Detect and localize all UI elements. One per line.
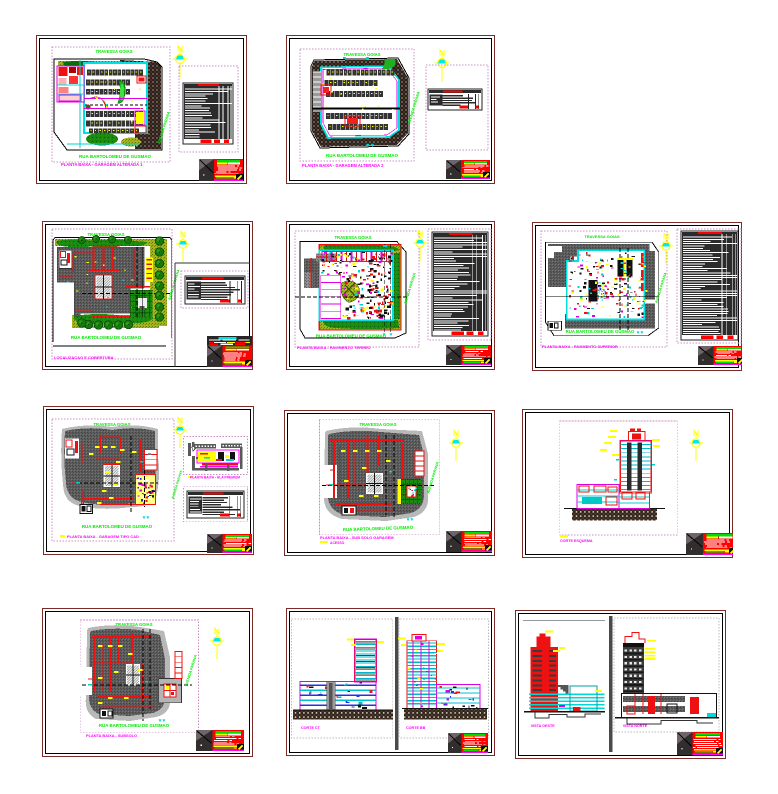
svg-text:PLANTA BAIXA - SUB SOLO GARAGE: PLANTA BAIXA - SUB SOLO GARAGEM [320, 535, 394, 540]
svg-text:TRAVESSA GOIAS: TRAVESSA GOIAS [335, 235, 372, 240]
svg-text:VISTA OESTE: VISTA OESTE [531, 724, 556, 728]
svg-text:RUA BARTOLOMEU DE GUSMAO: RUA BARTOLOMEU DE GUSMAO [71, 335, 142, 340]
svg-text:VISTA NORTE: VISTA NORTE [623, 724, 648, 728]
svg-text:TRAVESSA GOIAS: TRAVESSA GOIAS [88, 232, 125, 237]
svg-text:CORTE BB: CORTE BB [406, 726, 426, 730]
svg-text:PLANTA BAIXA - GARAGEM TIPO CA: PLANTA BAIXA - GARAGEM TIPO CAD [67, 534, 139, 539]
svg-text:TRAVESSA GOIAS: TRAVESSA GOIAS [344, 52, 381, 57]
svg-text:▾ ▾: ▾ ▾ [365, 143, 375, 149]
svg-text:LOCALIZACAO E COBERTURA: LOCALIZACAO E COBERTURA [54, 355, 114, 360]
svg-text:TRAVESSA GOIAS: TRAVESSA GOIAS [360, 422, 397, 427]
svg-text:▾ ▾: ▾ ▾ [636, 330, 644, 336]
svg-text:PLANTA BAIXA - GARAGEM ALTERAD: PLANTA BAIXA - GARAGEM ALTERADA 2 [302, 163, 384, 168]
svg-text:PLANTA BAIXA - GARAGEM ALTERAD: PLANTA BAIXA - GARAGEM ALTERADA 1 [61, 162, 143, 167]
svg-text:RUA BARTOLOMEU DE GUSMAO: RUA BARTOLOMEU DE GUSMAO [99, 723, 170, 728]
svg-text:▾ ▾: ▾ ▾ [406, 517, 414, 523]
svg-text:PLANTA BAIXA - PAVIMENTO SUPER: PLANTA BAIXA - PAVIMENTO SUPERIOR [542, 344, 618, 349]
svg-text:RUA BARTOLOMEU DE GUSMAO: RUA BARTOLOMEU DE GUSMAO [316, 334, 387, 339]
svg-text:CORTE CT: CORTE CT [301, 726, 321, 730]
svg-text:RUA BARTOLOMEU DE GUSMAO: RUA BARTOLOMEU DE GUSMAO [326, 153, 398, 158]
svg-text:RUA BARTOLOMEU DE GUSMAO: RUA BARTOLOMEU DE GUSMAO [82, 524, 153, 529]
svg-text:ACESSO: ACESSO [330, 541, 345, 545]
svg-text:TRAVESSA GOIAS: TRAVESSA GOIAS [584, 234, 620, 239]
svg-text:CORTE ESQUEMA: CORTE ESQUEMA [560, 539, 593, 543]
svg-text:TRAVESSA GOIAS: TRAVESSA GOIAS [96, 49, 133, 54]
svg-text:▾ ▾: ▾ ▾ [142, 515, 150, 521]
svg-text:▾: ▾ [389, 332, 393, 338]
svg-text:PLANTA BAIXA - PAVIMENTO TERRE: PLANTA BAIXA - PAVIMENTO TERREO [297, 345, 371, 350]
svg-text:PLANTA BAIXA - ALA PREMIUM: PLANTA BAIXA - ALA PREMIUM [190, 476, 240, 480]
svg-text:RUA BARTOLOMEU DE GUSMAO: RUA BARTOLOMEU DE GUSMAO [79, 154, 151, 159]
svg-text:RUA BARTOLOMEU DE GUSMAO: RUA BARTOLOMEU DE GUSMAO [566, 329, 635, 334]
svg-text:PLANTA BAIXA - SUBSOLO: PLANTA BAIXA - SUBSOLO [86, 733, 137, 738]
